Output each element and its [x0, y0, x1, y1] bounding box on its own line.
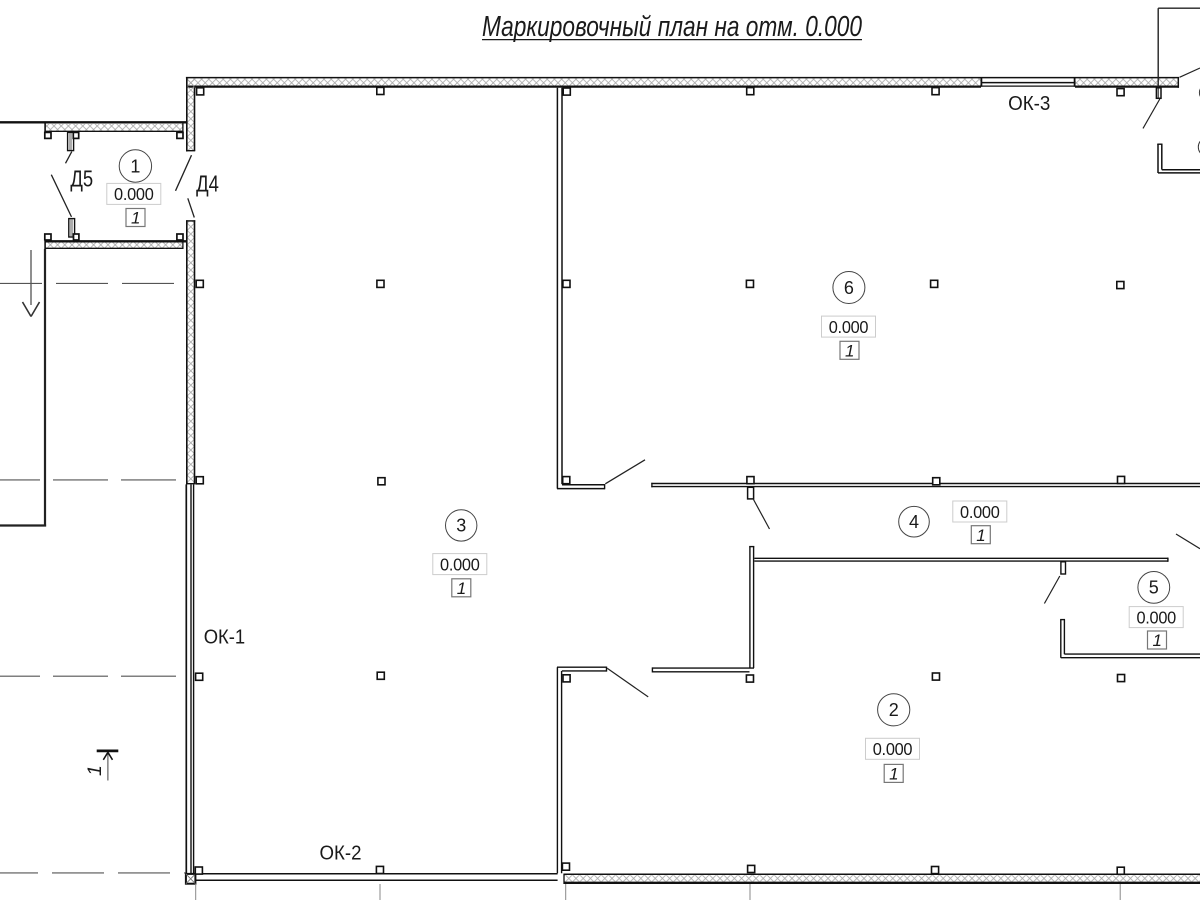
- svg-text:1: 1: [1152, 631, 1161, 650]
- svg-text:1: 1: [457, 579, 466, 598]
- svg-text:Д5: Д5: [70, 165, 93, 191]
- svg-text:3: 3: [456, 516, 466, 536]
- svg-text:1: 1: [130, 156, 140, 176]
- svg-text:0.000: 0.000: [1136, 607, 1176, 627]
- svg-text:1: 1: [889, 765, 898, 784]
- svg-text:Д4: Д4: [196, 171, 219, 197]
- svg-text:2: 2: [889, 700, 899, 720]
- svg-text:0.000: 0.000: [440, 554, 480, 574]
- svg-text:4: 4: [909, 512, 919, 532]
- svg-text:ОК-1: ОК-1: [204, 625, 246, 648]
- svg-text:1: 1: [845, 341, 854, 360]
- svg-text:6: 6: [844, 278, 854, 298]
- svg-text:0.000: 0.000: [829, 317, 869, 337]
- svg-text:Маркировочный план на отм. 0.0: Маркировочный план на отм. 0.000: [482, 11, 862, 43]
- svg-text:0.000: 0.000: [114, 184, 154, 204]
- svg-text:1: 1: [131, 209, 140, 228]
- svg-text:1: 1: [84, 765, 106, 776]
- svg-text:ОК-2: ОК-2: [320, 842, 362, 865]
- svg-text:0.000: 0.000: [873, 739, 913, 759]
- svg-text:0.000: 0.000: [960, 502, 1000, 522]
- svg-text:ОК-3: ОК-3: [1008, 92, 1050, 115]
- svg-text:1: 1: [976, 526, 985, 545]
- svg-text:5: 5: [1149, 578, 1159, 598]
